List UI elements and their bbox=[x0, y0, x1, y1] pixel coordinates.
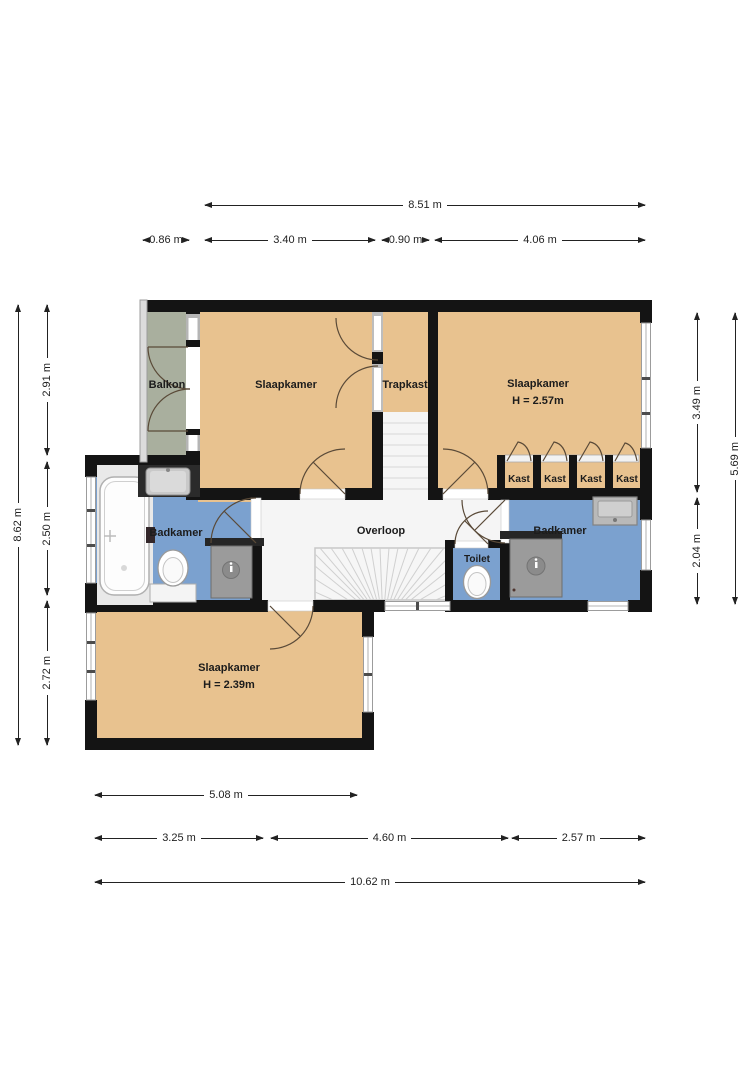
dim-label: 2.50 m bbox=[42, 507, 53, 551]
toilet-wc bbox=[464, 566, 491, 599]
window-bedroom-bottom-left bbox=[87, 613, 96, 700]
dim-label: 8.62 m bbox=[13, 503, 24, 547]
dim-top-seg-4: 4.06 m bbox=[435, 234, 645, 246]
stair-closet-floor bbox=[381, 310, 430, 414]
closet-label-2: Kast bbox=[544, 474, 566, 485]
balcony-glazed-wall bbox=[186, 306, 200, 458]
floor-plan-svg: Balkon Slaapkamer Trapkast Slaapkamer H … bbox=[0, 0, 755, 1067]
window-bedroom-top-right bbox=[642, 323, 651, 448]
dim-label: 0.90 m bbox=[384, 235, 428, 246]
sink-left bbox=[138, 465, 200, 497]
bedroom-bottom-height: H = 2.39m bbox=[203, 679, 255, 691]
dim-right-seg-2: 2.04 m bbox=[691, 498, 703, 604]
dim-label: 3.40 m bbox=[268, 235, 312, 246]
closet-label-3: Kast bbox=[580, 474, 602, 485]
bedroom-top-left-floor bbox=[198, 310, 374, 502]
window-bathroom-right-south bbox=[588, 602, 628, 611]
dim-left-total: 8.62 m bbox=[12, 305, 24, 745]
dim-bottom-row1: 5.08 m bbox=[95, 789, 357, 801]
toilet-label: Toilet bbox=[464, 554, 491, 565]
dim-label: 2.91 m bbox=[42, 358, 53, 402]
stair-closet-label: Trapkast bbox=[382, 379, 428, 391]
dim-left-seg-3: 2.72 m bbox=[41, 601, 53, 745]
dim-left-seg-1: 2.91 m bbox=[41, 305, 53, 455]
dim-right-seg-1: 3.49 m bbox=[691, 313, 703, 492]
balcony-railing bbox=[140, 300, 147, 462]
dim-label: 2.57 m bbox=[557, 833, 601, 844]
dim-label: 2.04 m bbox=[692, 529, 703, 573]
dim-label: 4.60 m bbox=[368, 833, 412, 844]
dim-label: 3.49 m bbox=[692, 381, 703, 425]
landing-label: Overloop bbox=[357, 525, 406, 537]
dim-bottom-seg-2: 4.60 m bbox=[271, 832, 508, 844]
stairwell-floor bbox=[381, 412, 430, 494]
sink-right bbox=[593, 497, 637, 525]
balcony-label: Balkon bbox=[149, 379, 186, 391]
dim-top-total: 8.51 m bbox=[205, 199, 645, 211]
window-bathroom-right bbox=[642, 520, 651, 570]
floor-plan-page: Balkon Slaapkamer Trapkast Slaapkamer H … bbox=[0, 0, 755, 1067]
dim-top-seg-1: 0.86 m bbox=[143, 234, 189, 246]
stair-closet-doors bbox=[372, 312, 383, 412]
bedroom-top-right-label: Slaapkamer bbox=[507, 378, 569, 390]
dim-top-seg-2: 3.40 m bbox=[205, 234, 375, 246]
dim-label: 3.25 m bbox=[157, 833, 201, 844]
closet-label-4: Kast bbox=[616, 474, 638, 485]
dim-label: 8.51 m bbox=[403, 200, 447, 211]
dim-left-seg-2: 2.50 m bbox=[41, 462, 53, 595]
dim-bottom-total: 10.62 m bbox=[95, 876, 645, 888]
bedroom-bottom-floor bbox=[93, 608, 366, 742]
bedroom-bottom-label: Slaapkamer bbox=[198, 662, 260, 674]
dim-label: 5.69 m bbox=[730, 437, 741, 481]
bathroom-left-label: Badkamer bbox=[149, 527, 203, 539]
dim-bottom-seg-3: 2.57 m bbox=[512, 832, 645, 844]
bedroom-top-left-label: Slaapkamer bbox=[255, 379, 317, 391]
dim-top-seg-3: 0.90 m bbox=[382, 234, 429, 246]
bedroom-top-right-height: H = 2.57m bbox=[512, 395, 564, 407]
bathroom-right-label: Badkamer bbox=[533, 525, 587, 537]
closet-label-1: Kast bbox=[508, 474, 530, 485]
dim-label: 4.06 m bbox=[518, 235, 562, 246]
window-landing-south bbox=[385, 602, 450, 611]
dim-label: 10.62 m bbox=[345, 877, 395, 888]
dim-label: 5.08 m bbox=[204, 790, 248, 801]
window-bedroom-bottom-east bbox=[364, 637, 373, 712]
dim-right-total: 5.69 m bbox=[729, 313, 741, 604]
dim-bottom-seg-1: 3.25 m bbox=[95, 832, 263, 844]
dim-label: 2.72 m bbox=[42, 651, 53, 695]
window-bathroom-left bbox=[87, 477, 96, 583]
